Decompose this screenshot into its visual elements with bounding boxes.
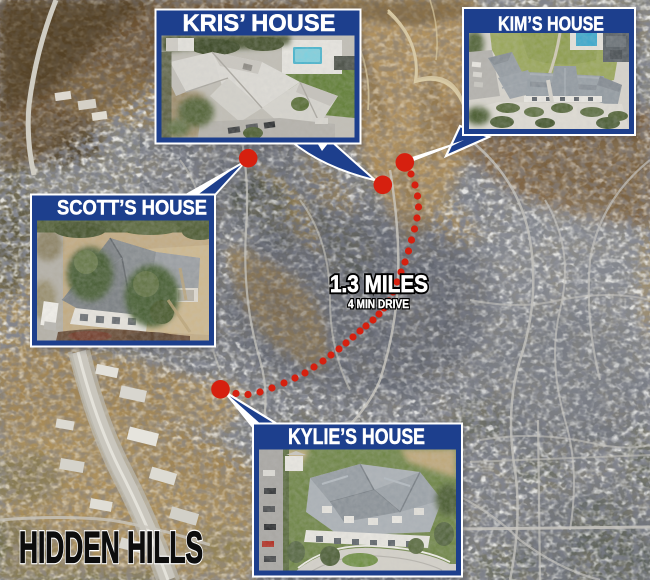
svg-text:KRIS’ HOUSE: KRIS’ HOUSE [183,11,336,37]
svg-text:KIM’S HOUSE: KIM’S HOUSE [498,13,604,36]
svg-text:KYLIE’S HOUSE: KYLIE’S HOUSE [288,424,425,449]
svg-text:1.3 MILES: 1.3 MILES [330,271,428,298]
svg-text:SCOTT’S HOUSE: SCOTT’S HOUSE [57,196,207,220]
svg-text:HIDDEN HILLS: HIDDEN HILLS [19,524,203,573]
svg-text:4 MIN DRIVE: 4 MIN DRIVE [348,297,409,311]
